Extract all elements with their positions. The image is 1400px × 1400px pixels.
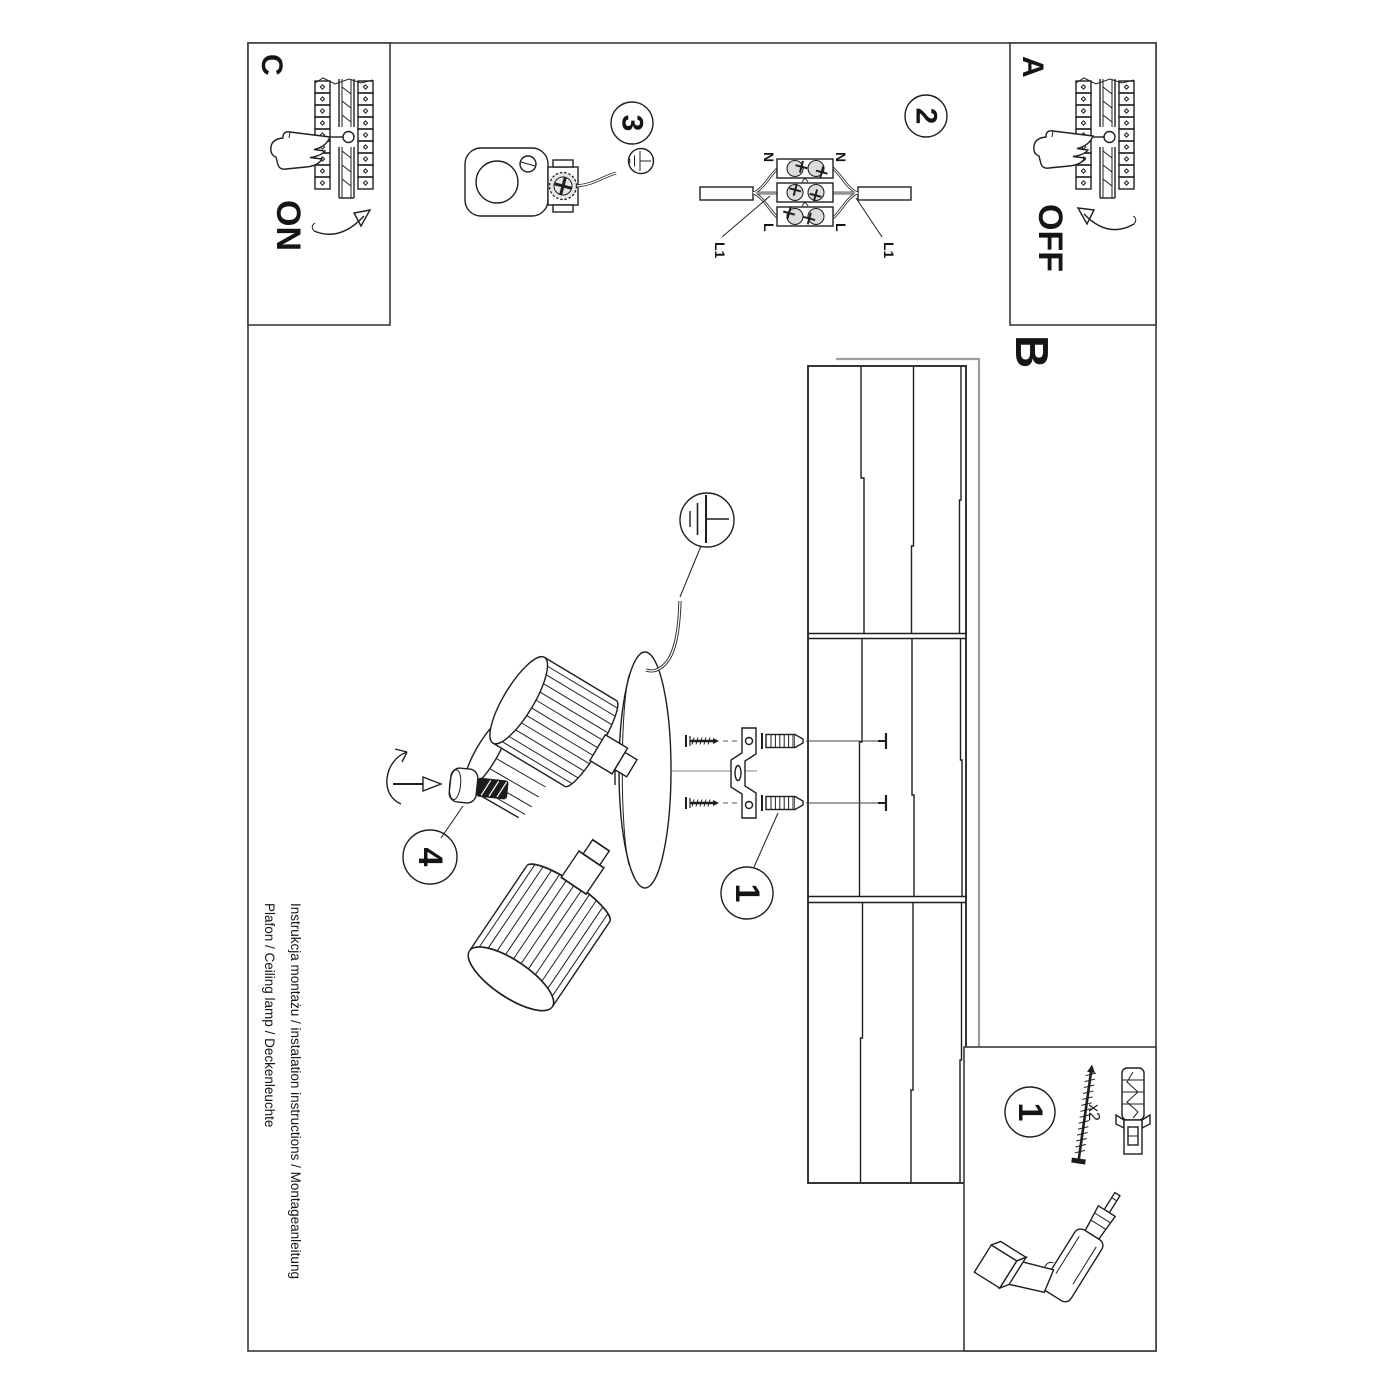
terminal-block — [777, 159, 833, 226]
parts-qty: x2 — [1085, 1104, 1102, 1121]
wall-anchor-icon — [762, 733, 803, 749]
footer-line-2: Plafon / Ceiling lamp / Deckenleuchte — [262, 903, 277, 1127]
step-number-4: 4 — [411, 848, 449, 867]
wood-screw-icon — [686, 735, 719, 747]
label-l-left: L — [761, 223, 777, 232]
step1-leader — [754, 813, 778, 867]
cable-left — [700, 187, 753, 200]
parts-number-1: 1 — [1011, 1103, 1049, 1122]
ground-symbol-small-icon — [629, 149, 654, 174]
label-n-left: N — [761, 152, 777, 162]
leader-l1-right — [856, 198, 882, 237]
rotate-screw-arrow-icon — [387, 749, 407, 804]
label-c: C — [255, 54, 288, 76]
step-number-2: 2 — [910, 108, 943, 125]
instruction-sheet: C ON A OFF B 3 2 — [0, 0, 1400, 1400]
footer-line-1: Instrukcja montażu / instalation instruc… — [288, 903, 303, 1279]
ceiling-front — [808, 366, 966, 1183]
ground-leader — [680, 546, 701, 597]
label-l-right: L — [833, 223, 849, 232]
label-l1-right: L1 — [881, 242, 897, 259]
footer: Instrukcja montażu / instalation instruc… — [262, 903, 303, 1279]
lamp-holder-icon — [465, 148, 548, 216]
ground-symbol-icon — [680, 493, 734, 547]
step3-group: 3 — [465, 102, 654, 216]
direction-arrow-icon — [393, 777, 441, 791]
wall-anchor-icon — [762, 795, 803, 811]
step2-group: 2 — [700, 95, 947, 259]
label-a: A — [1016, 56, 1049, 78]
label-on: ON — [269, 200, 307, 251]
lamp-group — [457, 493, 734, 1022]
instruction-drawing: C ON A OFF B 3 2 — [0, 0, 1400, 1400]
ceiling-panel — [808, 359, 979, 1183]
step-number-1: 1 — [728, 884, 766, 903]
label-n-right: N — [833, 152, 849, 162]
shade-lower — [459, 817, 642, 1022]
wood-screw-icon — [686, 797, 719, 809]
label-b: B — [1006, 335, 1058, 368]
box-c — [248, 43, 390, 325]
step4-leader — [441, 806, 463, 838]
label-l1-left: L1 — [712, 242, 728, 259]
label-off: OFF — [1031, 204, 1069, 272]
cable-right — [858, 187, 911, 200]
step-number-3: 3 — [616, 115, 649, 132]
